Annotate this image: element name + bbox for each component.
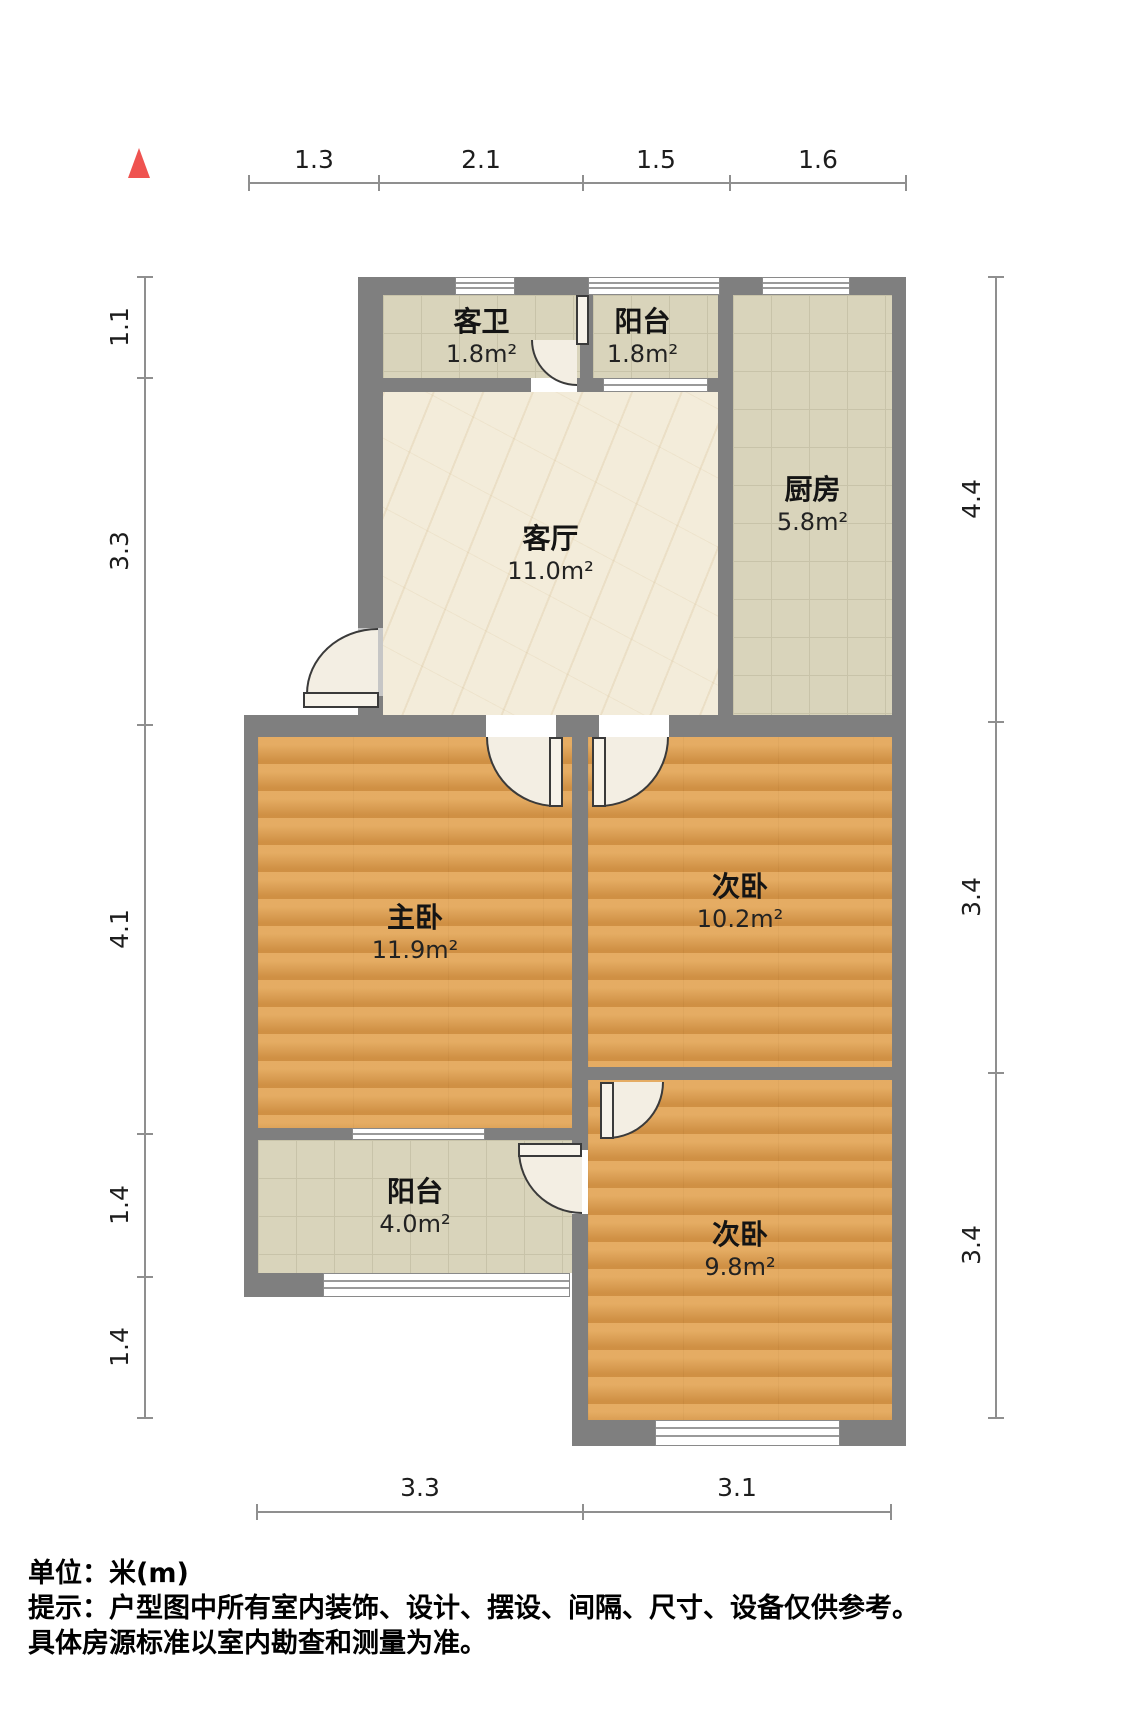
wall-segment — [556, 715, 599, 737]
dim-label: 1.4 — [106, 1170, 134, 1240]
dim-label: 3.3 — [385, 1474, 455, 1502]
room-living: 客厅 11.0m² — [383, 392, 718, 715]
dim-label: 4.1 — [106, 894, 134, 964]
wall-segment — [244, 715, 486, 737]
bedroom3-door-leaf — [600, 1082, 614, 1139]
dim-label: 1.5 — [621, 146, 691, 174]
dim-label: 1.4 — [106, 1312, 134, 1382]
dim-tick — [582, 175, 584, 191]
wall-segment — [892, 277, 906, 1446]
bathroom-door-leaf — [576, 295, 589, 345]
balcony-door-leaf — [518, 1143, 582, 1157]
room-name: 客卫 — [453, 305, 509, 339]
wall-segment — [244, 1128, 352, 1140]
dim-tick — [988, 1417, 1004, 1419]
room-name: 厨房 — [784, 473, 840, 507]
footer-disclaimer-1: 提示：户型图中所有室内装饰、设计、摆设、间隔、尺寸、设备仅供参考。 — [28, 1591, 1128, 1626]
wall-segment — [577, 378, 593, 392]
room-area: 10.2m² — [697, 904, 783, 934]
dim-tick — [582, 1504, 584, 1520]
dim-label: 3.1 — [702, 1474, 772, 1502]
window — [323, 1273, 570, 1297]
bedroom2-door-leaf — [592, 737, 606, 807]
floorplan: 客卫 1.8m² 阳台 1.8m² 厨房 5.8m² 客厅 11.0m² 主卧 … — [0, 0, 1144, 1710]
dim-tick — [137, 724, 153, 726]
dimension-line-top — [249, 182, 906, 184]
room-balcony-top: 阳台 1.8m² — [593, 295, 718, 378]
dim-label: 1.1 — [106, 292, 134, 362]
room-area: 11.0m² — [507, 556, 593, 586]
dim-label: 1.3 — [279, 146, 349, 174]
entry-door-arc — [306, 628, 378, 694]
wall-segment — [358, 378, 531, 392]
dim-tick — [248, 175, 250, 191]
dim-label: 4.4 — [958, 464, 986, 534]
window — [762, 277, 850, 295]
wall-segment — [572, 1214, 588, 1420]
master-door-leaf — [549, 737, 563, 807]
room-name: 阳台 — [614, 305, 670, 339]
room-name: 次卧 — [712, 870, 768, 904]
dim-tick — [378, 175, 380, 191]
footer-disclaimer-2: 具体房源标准以室内勘查和测量为准。 — [28, 1626, 1128, 1661]
north-arrow-icon — [128, 148, 150, 178]
window — [655, 1420, 840, 1446]
dim-tick — [905, 175, 907, 191]
dim-tick — [137, 1417, 153, 1419]
dim-tick — [137, 1276, 153, 1278]
dim-label: 2.1 — [446, 146, 516, 174]
room-kitchen: 厨房 5.8m² — [733, 295, 892, 715]
window — [588, 277, 720, 295]
dim-tick — [137, 276, 153, 278]
wall-segment — [572, 737, 588, 1067]
wall-segment — [244, 737, 258, 1297]
dim-tick — [988, 276, 1004, 278]
dim-tick — [729, 175, 731, 191]
dim-tick — [137, 1133, 153, 1135]
footer-notes: 单位：米(m) 提示：户型图中所有室内装饰、设计、摆设、间隔、尺寸、设备仅供参考… — [28, 1556, 1128, 1661]
dimension-line-right — [995, 277, 997, 1418]
window — [352, 1128, 485, 1140]
dim-label: 3.3 — [106, 516, 134, 586]
room-name: 阳台 — [387, 1175, 443, 1209]
dim-label: 3.4 — [958, 1210, 986, 1280]
wall-segment — [669, 715, 906, 737]
wall-segment — [572, 1067, 892, 1080]
dim-tick — [890, 1504, 892, 1520]
entry-door-leaf — [303, 692, 379, 708]
bathroom-door-arc — [531, 340, 577, 386]
dim-tick — [256, 1504, 258, 1520]
window — [455, 277, 515, 295]
wall-segment — [840, 1420, 906, 1446]
window — [603, 378, 708, 392]
room-name: 主卧 — [387, 901, 443, 935]
wall-segment — [358, 295, 383, 628]
dim-tick — [137, 377, 153, 379]
room-area: 11.9m² — [372, 935, 458, 965]
room-area: 5.8m² — [777, 507, 848, 537]
dim-label: 3.4 — [958, 862, 986, 932]
dimension-line-left — [144, 277, 146, 1418]
room-area: 1.8m² — [607, 339, 678, 369]
footer-unit: 单位：米(m) — [28, 1556, 1128, 1591]
wall-segment — [718, 295, 733, 715]
room-area: 4.0m² — [379, 1209, 450, 1239]
room-name: 客厅 — [522, 522, 578, 556]
dim-tick — [988, 1072, 1004, 1074]
room-area: 9.8m² — [704, 1252, 775, 1282]
dim-label: 1.6 — [783, 146, 853, 174]
wall-segment — [572, 1080, 588, 1150]
wall-segment — [244, 1273, 323, 1297]
dimension-line-bottom — [257, 1511, 891, 1513]
room-name: 次卧 — [712, 1218, 768, 1252]
dim-tick — [988, 721, 1004, 723]
room-area: 1.8m² — [446, 339, 517, 369]
wall-segment — [572, 1420, 655, 1446]
